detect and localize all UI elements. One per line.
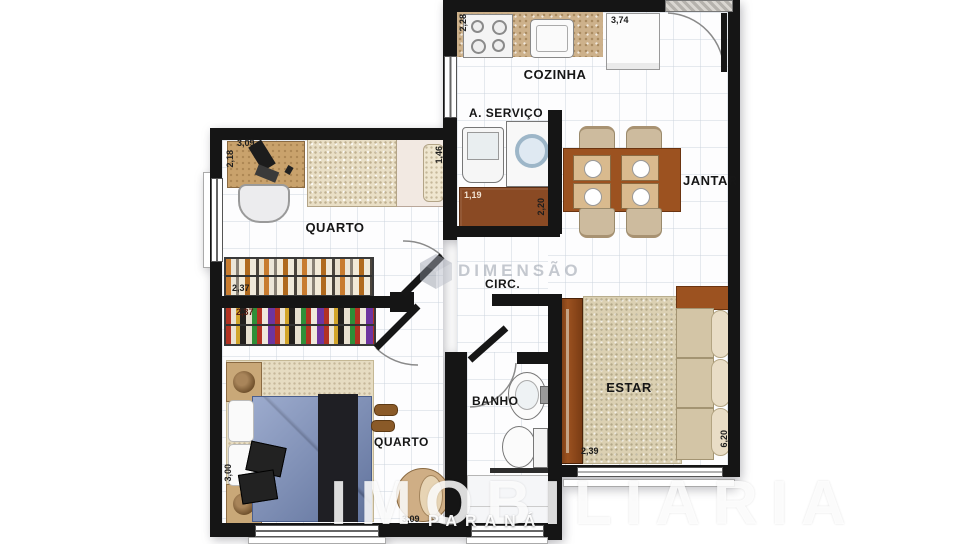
room-label-quarto2: QUARTO bbox=[374, 435, 429, 449]
wall-top bbox=[443, 0, 665, 12]
region-watermark: PARANÁ bbox=[428, 513, 543, 531]
dimensao-watermark-text: DIMENSÃO bbox=[458, 261, 582, 281]
wall-bath-top bbox=[517, 352, 550, 364]
laundry-tub bbox=[462, 127, 504, 183]
dining-chair bbox=[626, 208, 662, 238]
stove-burner-icon bbox=[492, 39, 505, 52]
placemat-plate bbox=[621, 155, 659, 181]
wall-hall-living bbox=[492, 294, 562, 306]
room-label-estar: ESTAR bbox=[596, 380, 662, 395]
dim-bed1-width: 1,46 bbox=[434, 146, 444, 164]
single-bed-duvet bbox=[307, 139, 397, 207]
room-label-banho: BANHO bbox=[472, 394, 519, 408]
wall-kitchen-left bbox=[443, 0, 457, 240]
slippers bbox=[374, 404, 398, 416]
desk bbox=[227, 141, 305, 188]
cube-logo-icon bbox=[418, 252, 454, 290]
room-label-servico: A. SERVIÇO bbox=[458, 106, 554, 120]
bed-cushion bbox=[238, 469, 278, 504]
wall-service-right bbox=[548, 110, 562, 234]
room-label-quarto1: QUARTO bbox=[303, 220, 367, 235]
brand-watermark: IMOBILIARIA bbox=[330, 468, 859, 539]
sofa bbox=[676, 308, 714, 460]
stove bbox=[463, 14, 513, 58]
entry-threshold bbox=[665, 0, 733, 12]
dining-chair bbox=[579, 208, 615, 238]
window bbox=[444, 56, 457, 118]
dim-estar-width: 2,39 bbox=[581, 446, 599, 456]
dim-desk-width: 3,09 bbox=[237, 138, 255, 148]
stove-burner-icon bbox=[471, 39, 486, 54]
dim-fridge-width: 3,74 bbox=[611, 15, 629, 25]
pillow bbox=[228, 400, 254, 442]
placemat-plate bbox=[573, 155, 611, 181]
desk-object bbox=[255, 164, 280, 182]
placemat-plate bbox=[621, 183, 659, 209]
room-label-cozinha: COZINHA bbox=[505, 67, 605, 82]
slippers bbox=[371, 420, 395, 432]
kitchen-sink bbox=[530, 19, 574, 58]
toilet-tank bbox=[533, 428, 548, 468]
stove-burner-icon bbox=[471, 20, 484, 33]
wall-right bbox=[728, 0, 740, 477]
stove-burner-icon bbox=[492, 20, 507, 35]
dining-table bbox=[563, 148, 681, 212]
room-label-jantar: JANTAR bbox=[683, 173, 738, 188]
washing-machine bbox=[506, 121, 554, 187]
wall-divider-stub bbox=[390, 292, 414, 312]
dim-wardrobe2-width: 2,37 bbox=[236, 307, 254, 317]
dimensao-watermark: DIMENSÃO bbox=[418, 252, 582, 290]
dim-wardrobe1-width: 2,37 bbox=[232, 283, 250, 293]
toilet bbox=[502, 426, 536, 468]
floor-plan: COZINHA A. SERVIÇO JANTAR CIRC. QUARTO Q… bbox=[0, 0, 960, 540]
dim-desk-depth: 2,18 bbox=[225, 150, 235, 168]
dim-quarto2-depth: 3,00 bbox=[223, 464, 233, 482]
wall-service-bottom bbox=[457, 226, 560, 237]
dim-service-bench-width: 1,19 bbox=[464, 190, 482, 200]
dim-kitchen-depth: 2,28 bbox=[458, 14, 468, 32]
window bbox=[211, 178, 223, 262]
console-table bbox=[676, 286, 730, 310]
desk-object bbox=[284, 165, 293, 175]
dim-service-bench-depth: 2,20 bbox=[536, 198, 546, 216]
desk-chair bbox=[238, 184, 290, 223]
placemat-plate bbox=[573, 183, 611, 209]
dim-estar-depth: 6,20 bbox=[719, 430, 729, 448]
